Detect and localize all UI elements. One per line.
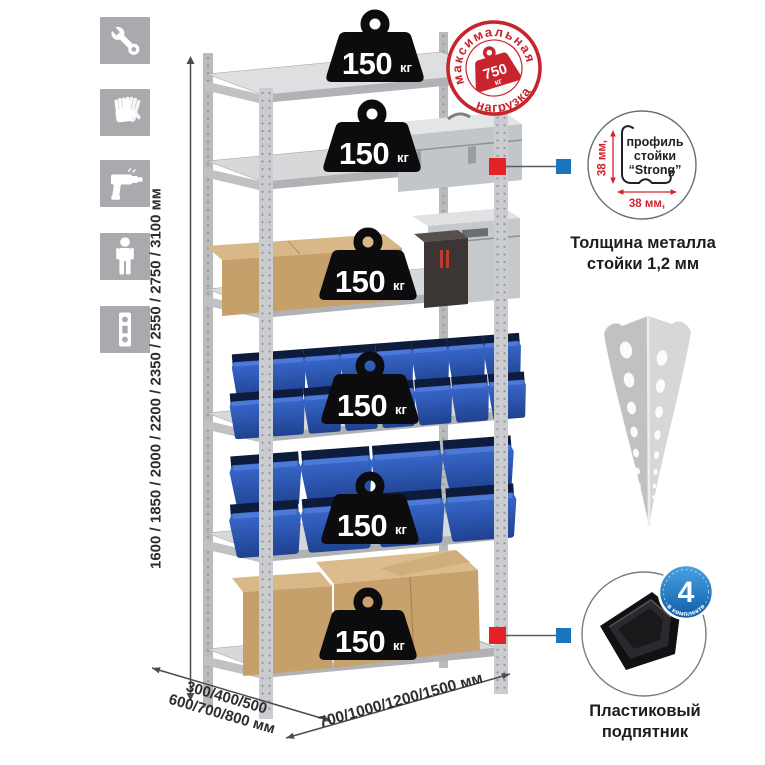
profile-label-3: “Strong” xyxy=(629,163,682,177)
callout-bottom xyxy=(489,627,571,644)
load-weight-1: 150 кг xyxy=(326,14,423,82)
caption-line-2: подпятник xyxy=(554,722,736,743)
profile-label-2: стойки xyxy=(634,149,676,163)
weight-unit: кг xyxy=(393,638,406,653)
callout-blue-square xyxy=(556,159,571,174)
caption-line-1: Пластиковый xyxy=(554,701,736,722)
scene-graphic: 150 кг 150 кг 150 кг 150 кг 150 кг 150 к… xyxy=(0,0,765,765)
load-weight-2: 150 кг xyxy=(323,104,420,172)
callout-blue-square xyxy=(556,628,571,643)
metal-thickness-caption: Толщина металла стойки 1,2 мм xyxy=(552,233,734,276)
weight-unit: кг xyxy=(397,150,410,165)
caption-line-2: стойки 1,2 мм xyxy=(552,254,734,275)
weight-value: 150 xyxy=(342,46,392,81)
angle-post-image xyxy=(604,316,691,526)
weight-value: 150 xyxy=(339,136,389,171)
weight-unit: кг xyxy=(400,60,413,75)
sidebar-icons xyxy=(100,17,150,353)
height-dimensions-label: 1600 / 1850 / 2000 / 2200 / 2350 / 2550 … xyxy=(144,57,168,700)
person-icon xyxy=(100,233,150,280)
weight-value: 150 xyxy=(337,388,387,423)
weight-unit: кг xyxy=(395,522,408,537)
weight-value: 150 xyxy=(335,264,385,299)
profile-label-1: профиль xyxy=(626,135,683,149)
profile-strip-icon xyxy=(100,306,150,353)
post-profile-detail: 38 мм, 38 мм, профиль стойки “Strong” xyxy=(588,111,696,219)
weight-value: 150 xyxy=(335,624,385,659)
shelving-rack-infographic: 150 кг 150 кг 150 кг 150 кг 150 кг 150 к… xyxy=(0,0,765,765)
dim-38mm-horizontal: 38 мм, xyxy=(629,198,665,210)
count-badge: 4 в комплекте xyxy=(659,565,713,619)
caption-line-1: Толщина металла xyxy=(552,233,734,254)
weight-unit: кг xyxy=(395,402,408,417)
callout-top xyxy=(489,158,571,175)
wrench-icon xyxy=(100,17,150,64)
weight-unit: кг xyxy=(393,278,406,293)
badge-number: 4 xyxy=(678,576,695,609)
drill-icon xyxy=(100,160,150,207)
plastic-foot-caption: Пластиковый подпятник xyxy=(554,701,736,744)
max-load-stamp: максимальная нагрузка 750 кг xyxy=(437,11,552,127)
dim-38mm-vertical: 38 мм, xyxy=(597,140,609,176)
weight-value: 150 xyxy=(337,508,387,543)
gloves-icon xyxy=(100,89,150,136)
callout-red-square xyxy=(489,627,506,644)
callout-red-square xyxy=(489,158,506,175)
